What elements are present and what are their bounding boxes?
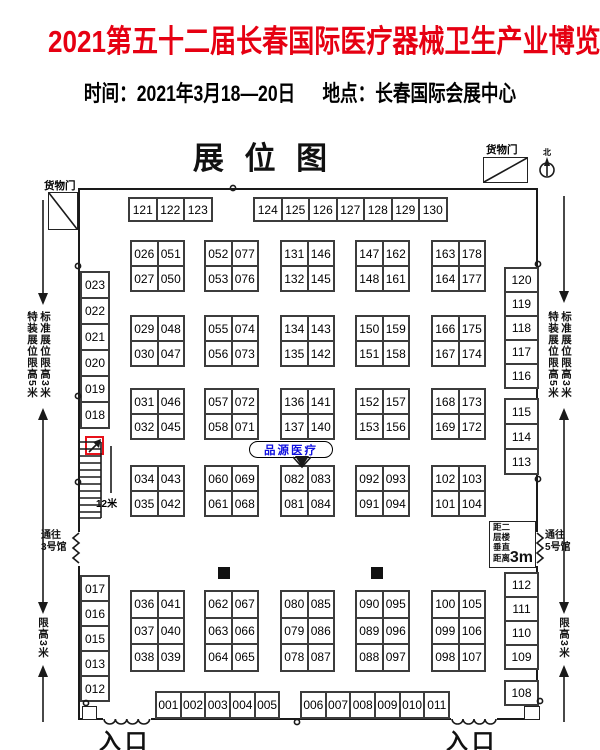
booth-block-row: 060069 — [205, 466, 258, 491]
booth-127: 127 — [337, 198, 365, 221]
compass-icon — [540, 157, 554, 177]
booth-block-row: 090095 — [356, 591, 409, 618]
booth-148: 148 — [356, 266, 383, 291]
booth-045: 045 — [158, 414, 185, 439]
pillar-right — [371, 567, 383, 579]
booth-119: 119 — [505, 292, 538, 316]
booth-086: 086 — [308, 618, 335, 645]
booth-block-r3c5: 168173169172 — [431, 388, 486, 440]
booth-block-row: 147162 — [356, 241, 409, 266]
cargo-door-right — [483, 157, 528, 183]
booth-093: 093 — [383, 466, 410, 491]
booth-095: 095 — [383, 591, 410, 618]
booth-block-row: 026051 — [131, 241, 184, 266]
booth-158: 158 — [383, 341, 410, 366]
booth-089: 089 — [356, 618, 383, 645]
booth-001: 001 — [156, 692, 181, 718]
booth-block-r5c2: 062067063066064065 — [204, 590, 259, 672]
entrance-left-label: 入口 — [99, 724, 151, 750]
wall-opening-hall3 — [76, 532, 83, 566]
booth-066: 066 — [232, 618, 259, 645]
booth-008: 008 — [350, 692, 375, 718]
booth-block-row: 166175 — [432, 316, 485, 341]
booth-block-row: 052077 — [205, 241, 258, 266]
booth-005: 005 — [255, 692, 280, 718]
booth-030: 030 — [131, 341, 158, 366]
to-hall3-line1: 通往 — [41, 530, 67, 542]
booth-051: 051 — [158, 241, 185, 266]
booth-061: 061 — [205, 491, 232, 516]
booth-050: 050 — [158, 266, 185, 291]
booth-012: 012 — [81, 676, 109, 701]
booth-042: 042 — [158, 491, 185, 516]
booth-121: 121 — [129, 198, 157, 221]
cargo-door-right-label: 货物门 — [486, 142, 518, 157]
booth-block-row: 169172 — [432, 414, 485, 439]
booth-block-row: 030047 — [131, 341, 184, 366]
exhibitor-callout: 品源医疗 — [249, 441, 333, 458]
booth-082: 082 — [281, 466, 308, 491]
booth-096: 096 — [383, 618, 410, 645]
booth-041: 041 — [158, 591, 185, 618]
booth-116: 116 — [505, 364, 538, 388]
booth-069: 069 — [232, 466, 259, 491]
booth-022: 022 — [81, 298, 109, 324]
booth-067: 067 — [232, 591, 259, 618]
stairs-red-arrow-box — [85, 436, 104, 455]
booth-068: 068 — [232, 491, 259, 516]
booth-097: 097 — [383, 644, 410, 671]
compass-north-label: 北 — [543, 147, 551, 158]
booth-027: 027 — [131, 266, 158, 291]
booth-053: 053 — [205, 266, 232, 291]
booth-125: 125 — [282, 198, 310, 221]
booth-017: 017 — [81, 576, 109, 601]
booth-010: 010 — [400, 692, 425, 718]
booth-166: 166 — [432, 316, 459, 341]
booth-111: 111 — [505, 597, 538, 621]
booth-034: 034 — [131, 466, 158, 491]
note-line2: 层楼 — [490, 532, 535, 542]
booth-block-r1c4: 147162148161 — [355, 240, 410, 292]
booth-020: 020 — [81, 350, 109, 376]
booth-163: 163 — [432, 241, 459, 266]
right-height-limit-label: 限高3米 — [558, 617, 570, 658]
booth-114: 114 — [505, 424, 538, 449]
expo-floorplan-poster: 2021第五十二届长春国际医疗器械卫生产业博览会 时间：2021年3月18—20… — [0, 0, 600, 750]
booth-block-r2c3: 134143135142 — [280, 315, 335, 367]
wall-opening-entrance-left — [103, 717, 151, 722]
booth-block-row: 038039 — [131, 644, 184, 671]
booth-block-r1c1: 026051027050 — [130, 240, 185, 292]
booth-157: 157 — [383, 389, 410, 414]
booth-block-r5c4: 090095089096088097 — [355, 590, 410, 672]
booth-col-115-113: 115114113 — [504, 398, 539, 475]
booth-072: 072 — [232, 389, 259, 414]
booth-015: 015 — [81, 626, 109, 651]
booth-block-row: 082083 — [281, 466, 334, 491]
booth-block-row: 101104 — [432, 491, 485, 516]
booth-060: 060 — [205, 466, 232, 491]
booth-079: 079 — [281, 618, 308, 645]
booth-090: 090 — [356, 591, 383, 618]
booth-142: 142 — [308, 341, 335, 366]
booth-113: 113 — [505, 449, 538, 474]
booth-173: 173 — [459, 389, 486, 414]
booth-block-row: 164177 — [432, 266, 485, 291]
right-standard-limit-label: 标准展位限高3米 — [560, 311, 572, 398]
booth-block-row: 150159 — [356, 316, 409, 341]
to-hall3-line2: 3号馆 — [41, 542, 67, 554]
booth-137: 137 — [281, 414, 308, 439]
corner-box-left — [82, 706, 97, 720]
booth-block-row: 063066 — [205, 618, 258, 645]
booth-048: 048 — [158, 316, 185, 341]
booth-146: 146 — [308, 241, 335, 266]
note-value: 3m — [510, 549, 533, 567]
booth-153: 153 — [356, 414, 383, 439]
booth-block-row: 089096 — [356, 618, 409, 645]
booth-block-row: 058071 — [205, 414, 258, 439]
booth-169: 169 — [432, 414, 459, 439]
booth-037: 037 — [131, 618, 158, 645]
booth-100: 100 — [432, 591, 459, 618]
booth-129: 129 — [392, 198, 420, 221]
stairs-width-label: 12米 — [95, 495, 118, 510]
booth-108: 108 — [505, 681, 538, 705]
booth-147: 147 — [356, 241, 383, 266]
booth-056: 056 — [205, 341, 232, 366]
booth-block-row: 148161 — [356, 266, 409, 291]
booth-block-r4c2: 060069061068 — [204, 465, 259, 517]
place-value: 长春国际会展中心 — [375, 81, 516, 106]
booth-178: 178 — [459, 241, 486, 266]
booth-block-row: 137140 — [281, 414, 334, 439]
booth-block-row: 135142 — [281, 341, 334, 366]
booth-168: 168 — [432, 389, 459, 414]
left-standard-limit-label: 标准展位限高3米 — [39, 311, 51, 398]
booth-block-row: 132145 — [281, 266, 334, 291]
booth-019: 019 — [81, 376, 109, 402]
booth-126: 126 — [309, 198, 337, 221]
booth-076: 076 — [232, 266, 259, 291]
booth-block-row: 035042 — [131, 491, 184, 516]
booth-block-r4c1: 034043035042 — [130, 465, 185, 517]
time-label: 时间： — [84, 81, 137, 106]
booth-block-row: 062067 — [205, 591, 258, 618]
booth-row-121-123: 121122123 — [128, 197, 213, 222]
booth-080: 080 — [281, 591, 308, 618]
booth-136: 136 — [281, 389, 308, 414]
booth-013: 013 — [81, 651, 109, 676]
place-label: 地点： — [322, 81, 375, 106]
booth-145: 145 — [308, 266, 335, 291]
booth-031: 031 — [131, 389, 158, 414]
booth-074: 074 — [232, 316, 259, 341]
booth-128: 128 — [364, 198, 392, 221]
booth-block-row: 057072 — [205, 389, 258, 414]
to-hall3-label: 通往 3号馆 — [41, 530, 67, 554]
booth-085: 085 — [308, 591, 335, 618]
booth-block-r3c4: 152157153156 — [355, 388, 410, 440]
booth-078: 078 — [281, 644, 308, 671]
booth-row-124-130: 124125126127128129130 — [253, 197, 448, 222]
note-line1: 距二 — [490, 522, 535, 532]
booth-038: 038 — [131, 644, 158, 671]
booth-087: 087 — [308, 644, 335, 671]
booth-151: 151 — [356, 341, 383, 366]
booth-col-017-012: 017016015013012 — [80, 575, 110, 702]
booth-123: 123 — [184, 198, 212, 221]
booth-177: 177 — [459, 266, 486, 291]
booth-row-006-011: 006007008009010011 — [300, 691, 450, 719]
second-floor-note: 距二 层楼 垂直 距离 3m — [489, 521, 536, 568]
booth-058: 058 — [205, 414, 232, 439]
right-height-limits: 特装展位限高5米 标准展位限高3米 — [547, 311, 572, 398]
booth-block-row: 134143 — [281, 316, 334, 341]
booth-block-r1c3: 131146132145 — [280, 240, 335, 292]
booth-block-r5c5: 100105099106098107 — [431, 590, 486, 672]
booth-block-row: 027050 — [131, 266, 184, 291]
booth-block-r4c3: 082083081084 — [280, 465, 335, 517]
booth-073: 073 — [232, 341, 259, 366]
booth-150: 150 — [356, 316, 383, 341]
booth-016: 016 — [81, 601, 109, 626]
booth-block-row: 092093 — [356, 466, 409, 491]
booth-block-r2c5: 166175167174 — [431, 315, 486, 367]
booth-block-r1c2: 052077053076 — [204, 240, 259, 292]
booth-col-120-116: 120119118117116 — [504, 267, 539, 389]
booth-block-row: 036041 — [131, 591, 184, 618]
booth-047: 047 — [158, 341, 185, 366]
booth-block-r2c1: 029048030047 — [130, 315, 185, 367]
booth-167: 167 — [432, 341, 459, 366]
booth-043: 043 — [158, 466, 185, 491]
booth-block-r3c1: 031046032045 — [130, 388, 185, 440]
booth-120: 120 — [505, 268, 538, 292]
booth-block-r3c3: 136141137140 — [280, 388, 335, 440]
booth-106: 106 — [459, 618, 486, 645]
booth-col-023-018: 023022021020019018 — [80, 271, 110, 429]
booth-174: 174 — [459, 341, 486, 366]
booth-block-r2c2: 055074056073 — [204, 315, 259, 367]
booth-039: 039 — [158, 644, 185, 671]
booth-021: 021 — [81, 324, 109, 350]
booth-block-r5c3: 080085079086078087 — [280, 590, 335, 672]
booth-112: 112 — [505, 573, 538, 597]
booth-block-row: 061068 — [205, 491, 258, 516]
booth-023: 023 — [81, 272, 109, 298]
booth-block-row: 168173 — [432, 389, 485, 414]
booth-032: 032 — [131, 414, 158, 439]
to-hall5-line2: 5号馆 — [545, 542, 571, 554]
booth-block-r4c5: 102103101104 — [431, 465, 486, 517]
booth-057: 057 — [205, 389, 232, 414]
expo-subtitle: 时间：2021年3月18—20日地点：长春国际会展中心 — [60, 80, 540, 108]
right-special-limit-label: 特装展位限高5米 — [547, 311, 559, 398]
booth-102: 102 — [432, 466, 459, 491]
booth-091: 091 — [356, 491, 383, 516]
booth-141: 141 — [308, 389, 335, 414]
to-hall5-line1: 通往 — [545, 530, 571, 542]
booth-002: 002 — [181, 692, 206, 718]
booth-block-r3c2: 057072058071 — [204, 388, 259, 440]
booth-040: 040 — [158, 618, 185, 645]
booth-088: 088 — [356, 644, 383, 671]
booth-block-row: 078087 — [281, 644, 334, 671]
booth-006: 006 — [301, 692, 326, 718]
plan-title: 展 位 图 — [0, 133, 520, 178]
booth-164: 164 — [432, 266, 459, 291]
left-height-limit-label: 限高3米 — [37, 617, 49, 658]
booth-block-row: 055074 — [205, 316, 258, 341]
booth-172: 172 — [459, 414, 486, 439]
booth-162: 162 — [383, 241, 410, 266]
booth-159: 159 — [383, 316, 410, 341]
booth-026: 026 — [131, 241, 158, 266]
booth-118: 118 — [505, 316, 538, 340]
booth-105: 105 — [459, 591, 486, 618]
booth-064: 064 — [205, 644, 232, 671]
booth-062: 062 — [205, 591, 232, 618]
pillar-left — [218, 567, 230, 579]
booth-152: 152 — [356, 389, 383, 414]
booth-block-r2c4: 150159151158 — [355, 315, 410, 367]
booth-block-row: 032045 — [131, 414, 184, 439]
booth-081: 081 — [281, 491, 308, 516]
booth-block-row: 031046 — [131, 389, 184, 414]
booth-135: 135 — [281, 341, 308, 366]
left-height-limits: 特装展位限高5米 标准展位限高3米 — [26, 311, 51, 398]
booth-018: 018 — [81, 402, 109, 428]
booth-block-row: 151158 — [356, 341, 409, 366]
booth-block-row: 136141 — [281, 389, 334, 414]
booth-046: 046 — [158, 389, 185, 414]
booth-065: 065 — [232, 644, 259, 671]
booth-block-row: 064065 — [205, 644, 258, 671]
booth-124: 124 — [254, 198, 282, 221]
booth-132: 132 — [281, 266, 308, 291]
booth-098: 098 — [432, 644, 459, 671]
booth-block-row: 167174 — [432, 341, 485, 366]
booth-block-row: 102103 — [432, 466, 485, 491]
booth-block-row: 088097 — [356, 644, 409, 671]
booth-130: 130 — [419, 198, 447, 221]
booth-084: 084 — [308, 491, 335, 516]
booth-block-row: 053076 — [205, 266, 258, 291]
booth-block-row: 079086 — [281, 618, 334, 645]
booth-101: 101 — [432, 491, 459, 516]
corner-box-right — [524, 706, 540, 720]
booth-block-row: 099106 — [432, 618, 485, 645]
wall-opening-entrance-right — [451, 717, 497, 722]
booth-block-row: 081084 — [281, 491, 334, 516]
booth-block-row: 029048 — [131, 316, 184, 341]
booth-block-row: 131146 — [281, 241, 334, 266]
booth-block-row: 091094 — [356, 491, 409, 516]
booth-103: 103 — [459, 466, 486, 491]
booth-block-row: 152157 — [356, 389, 409, 414]
time-value: 2021年3月18—20日 — [137, 81, 295, 106]
booth-071: 071 — [232, 414, 259, 439]
booth-029: 029 — [131, 316, 158, 341]
booth-143: 143 — [308, 316, 335, 341]
booth-block-row: 037040 — [131, 618, 184, 645]
booth-003: 003 — [205, 692, 230, 718]
booth-block-row: 100105 — [432, 591, 485, 618]
entrance-right-label: 入口 — [446, 724, 498, 750]
booth-110: 110 — [505, 621, 538, 645]
booth-block-r1c5: 163178164177 — [431, 240, 486, 292]
booth-094: 094 — [383, 491, 410, 516]
booth-055: 055 — [205, 316, 232, 341]
booth-117: 117 — [505, 340, 538, 364]
booth-036: 036 — [131, 591, 158, 618]
booth-block-row: 153156 — [356, 414, 409, 439]
booth-108: 108 — [504, 680, 539, 706]
booth-block-row: 080085 — [281, 591, 334, 618]
booth-156: 156 — [383, 414, 410, 439]
expo-title: 2021第五十二届长春国际医疗器械卫生产业博览会 — [48, 24, 552, 60]
booth-063: 063 — [205, 618, 232, 645]
booth-block-r4c4: 092093091094 — [355, 465, 410, 517]
booth-block-row: 056073 — [205, 341, 258, 366]
booth-099: 099 — [432, 618, 459, 645]
booth-131: 131 — [281, 241, 308, 266]
booth-block-row: 163178 — [432, 241, 485, 266]
booth-col-112-109: 112111110109 — [504, 572, 539, 670]
booth-140: 140 — [308, 414, 335, 439]
cargo-door-left-label: 货物门 — [44, 178, 76, 193]
booth-007: 007 — [326, 692, 351, 718]
booth-109: 109 — [505, 645, 538, 669]
booth-161: 161 — [383, 266, 410, 291]
booth-block-row: 034043 — [131, 466, 184, 491]
booth-175: 175 — [459, 316, 486, 341]
cargo-door-left — [48, 192, 78, 230]
booth-block-row: 098107 — [432, 644, 485, 671]
booth-row-001-005: 001002003004005 — [155, 691, 280, 719]
booth-052: 052 — [205, 241, 232, 266]
booth-134: 134 — [281, 316, 308, 341]
booth-115: 115 — [505, 399, 538, 424]
booth-107: 107 — [459, 644, 486, 671]
booth-122: 122 — [157, 198, 185, 221]
booth-104: 104 — [459, 491, 486, 516]
to-hall5-label: 通往 5号馆 — [545, 530, 571, 554]
booth-092: 092 — [356, 466, 383, 491]
booth-011: 011 — [424, 692, 449, 718]
booth-083: 083 — [308, 466, 335, 491]
left-special-limit-label: 特装展位限高5米 — [26, 311, 38, 398]
booth-077: 077 — [232, 241, 259, 266]
booth-009: 009 — [375, 692, 400, 718]
booth-block-r5c1: 036041037040038039 — [130, 590, 185, 672]
booth-035: 035 — [131, 491, 158, 516]
booth-004: 004 — [230, 692, 255, 718]
